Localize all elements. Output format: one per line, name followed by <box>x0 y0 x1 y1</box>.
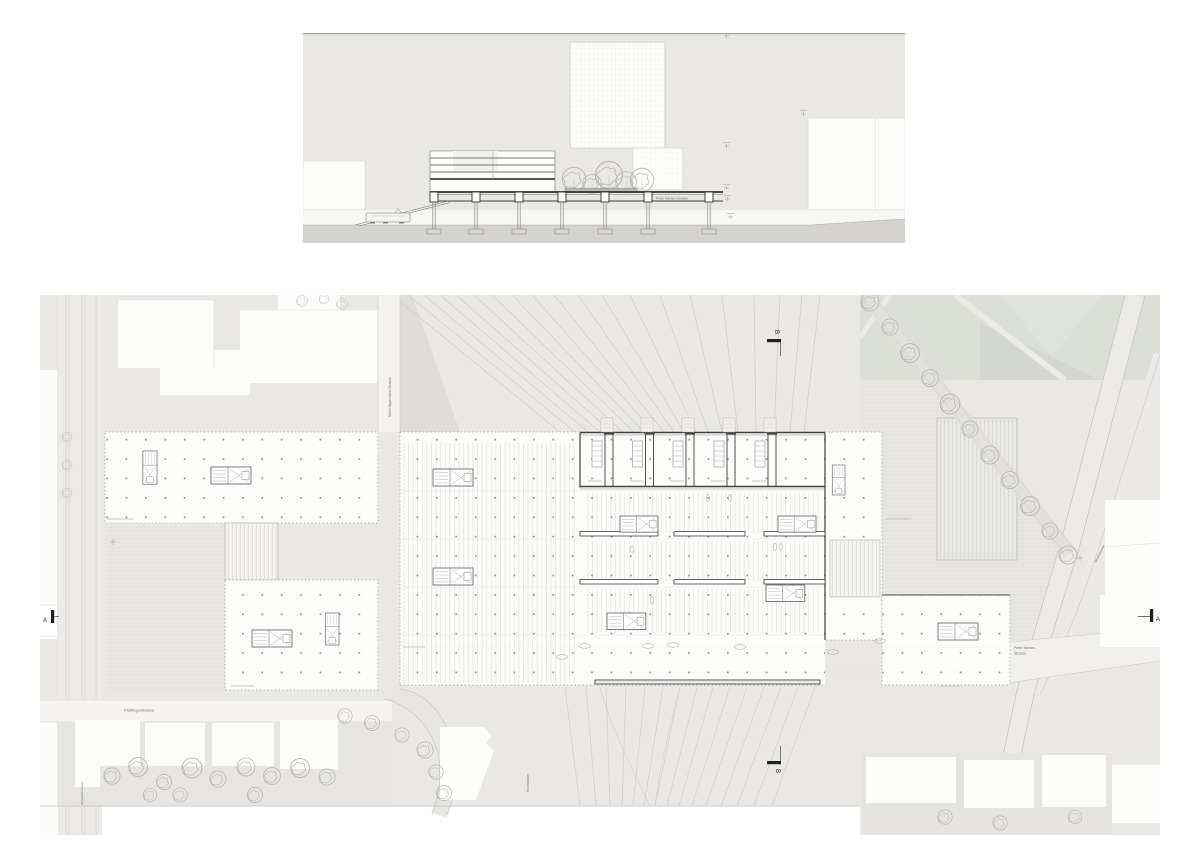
drawing-sheet: Peter Merian-Strasse <box>0 0 1200 861</box>
ramp-east <box>830 540 880 597</box>
meret-oppenheim-label: Meret Oppenheim-Strasse <box>388 377 392 417</box>
peter-merian-label-line2: Strasse <box>1014 652 1026 656</box>
roof-block-east <box>825 432 882 640</box>
peter-merian-label-line1: Peter Merian- <box>1014 646 1037 650</box>
midrise-building-section <box>430 151 555 192</box>
left-edge-building <box>40 370 57 628</box>
svg-text:B: B <box>774 769 780 773</box>
section-drawing-panel: Peter Merian-Strasse <box>303 33 905 243</box>
section-drawing: Peter Merian-Strasse <box>303 33 905 243</box>
building-east-edge <box>1105 500 1160 595</box>
pfeffingerstrasse-label: Pfeffingerstrasse <box>124 708 155 713</box>
svg-text:A: A <box>1156 617 1160 623</box>
left-edge-building <box>40 713 57 835</box>
roof-block-southwest <box>225 580 378 690</box>
platform-edge-bar <box>595 680 820 684</box>
svg-text:B: B <box>773 330 779 334</box>
marker-a-west: A <box>40 603 59 639</box>
building-right-elevation <box>808 118 905 210</box>
section-street-label: Peter Merian-Strasse <box>656 196 688 200</box>
svg-text:A: A <box>43 618 47 624</box>
tiled-plaza-west <box>105 523 225 690</box>
site-plan-panel: Pfeffingerstrasse Meret Oppenheim-Strass… <box>40 295 1160 835</box>
hochstrasse-label: Hochstrasse <box>526 774 530 792</box>
margarethenstrasse-label: Margarethenstrasse <box>80 781 84 805</box>
ramp-connector <box>225 523 278 580</box>
site-plan: Pfeffingerstrasse Meret Oppenheim-Strass… <box>40 295 1160 835</box>
building-left-elevation <box>303 161 365 210</box>
